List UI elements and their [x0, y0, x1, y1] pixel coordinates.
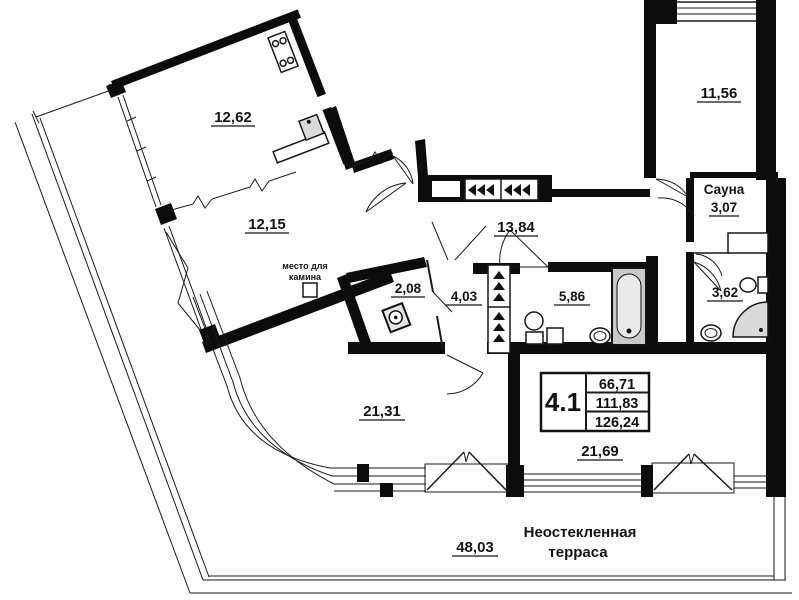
- room-label-bathroom: 5,86: [559, 289, 586, 304]
- room-label-living: 12,15: [248, 216, 286, 233]
- french-door-icon: [641, 454, 734, 497]
- room-label-kitchen: 12,62: [214, 109, 252, 126]
- fireplace-label-line1: место для: [282, 261, 328, 271]
- bathtub-icon: [612, 268, 646, 345]
- washbasin-icon: [590, 328, 610, 344]
- laundry-unit-icon: [547, 328, 563, 344]
- room-label-sauna-area: 3,07: [711, 200, 737, 215]
- zone-boundary-zigzag: [168, 172, 296, 211]
- left-facade: [106, 80, 221, 346]
- walls-angled-wing: [111, 9, 443, 353]
- unit-info-box: 4.1 66,71 111,83 126,24: [541, 373, 649, 431]
- window-icon: [734, 476, 768, 488]
- fireplace-label-line2: камина: [289, 272, 322, 282]
- terrace-name-line2: терраса: [548, 544, 608, 561]
- washing-machine-icon: [382, 303, 410, 332]
- wardrobe-icon: [488, 265, 510, 353]
- wardrobe-icon: [465, 179, 538, 200]
- stove-icon: [268, 31, 298, 72]
- room-label-top-right: 11,56: [701, 85, 738, 102]
- window-icon: [677, 2, 756, 21]
- terrace-boundary: [15, 84, 792, 593]
- room-label-corridor: 4,03: [451, 289, 478, 304]
- kitchen-counter: [273, 132, 329, 163]
- room-label-right: 21,69: [581, 443, 619, 460]
- room-label-sauna-name: Сауна: [704, 182, 745, 197]
- unit-number: 4.1: [545, 387, 581, 417]
- room-label-hall: 13,84: [497, 219, 535, 236]
- room-label-wc: 3,62: [712, 285, 738, 300]
- unit-living-area: 66,71: [599, 377, 635, 393]
- room-label-storage: 2,08: [395, 281, 422, 296]
- unit-apartment-area: 111,83: [596, 396, 639, 412]
- floor-plan-page: 4.1 66,71 111,83 126,24 12,62 12,15 13,8…: [0, 0, 799, 600]
- window-icon: [524, 474, 652, 492]
- terrace-pier: [357, 464, 369, 482]
- window-icon: [118, 95, 161, 207]
- french-door-icon: [425, 452, 508, 492]
- corner-shower-icon: [733, 302, 768, 337]
- terrace-pier: [380, 483, 393, 497]
- terrace-area-label: 48,03: [456, 539, 494, 556]
- wc-washbasin-icon: [701, 325, 721, 341]
- unit-total-area: 126,24: [595, 415, 639, 431]
- wc-toilet-icon: [740, 277, 768, 293]
- terrace-name-line1: Неостекленная: [524, 524, 637, 541]
- room-label-center: 21,31: [363, 403, 401, 420]
- fireplace-icon: [303, 283, 317, 297]
- bathroom-toilet-icon: [525, 312, 543, 344]
- sauna-shelf: [728, 233, 768, 253]
- floor-plan-svg: 4.1 66,71 111,83 126,24 12,62 12,15 13,8…: [0, 0, 799, 600]
